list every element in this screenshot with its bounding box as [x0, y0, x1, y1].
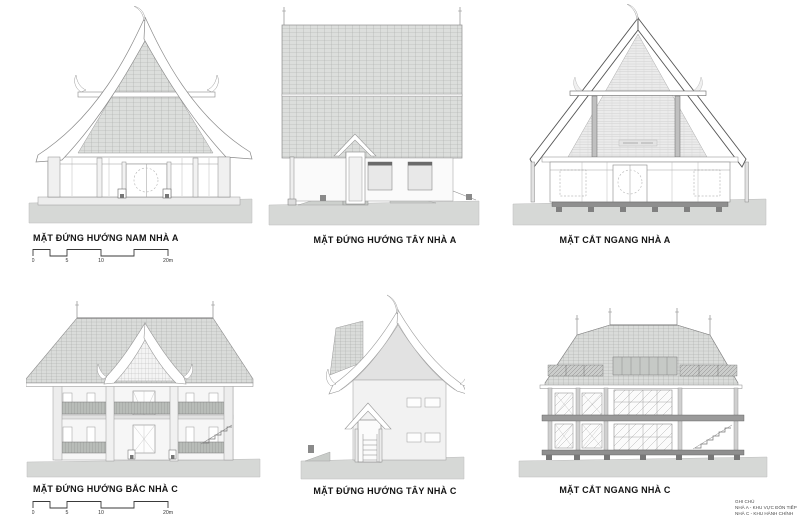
label-cross-section-c: MẶT CẮT NGANG NHÀ C — [515, 485, 715, 495]
wall-sign — [619, 140, 657, 146]
drawing-west-elevation-building-c — [300, 290, 465, 480]
ground — [27, 459, 260, 477]
side-ramp-rail — [453, 191, 476, 200]
roof-tiles — [282, 25, 462, 158]
lower-floor-glazing — [555, 424, 672, 450]
scale-tick-10: 10 — [98, 510, 104, 515]
scale-bar-bottom: 0 5 10 20m — [32, 497, 182, 515]
base-slab — [542, 450, 744, 460]
scale-tick-20m: 20m — [163, 258, 173, 263]
drawing-sheet: MẶT ĐỨNG HƯỚNG NAM NHÀ A MẶT ĐỨNG HƯỚNG … — [0, 0, 800, 524]
scale-tick-5: 5 — [66, 510, 69, 515]
drawing-west-elevation-building-a — [268, 4, 480, 226]
drawing-cross-section-building-c — [518, 290, 768, 478]
ridge-finials — [282, 7, 462, 26]
scale-bar-top: 0 5 10 20m — [32, 245, 182, 263]
drawing-cross-section-building-a — [512, 4, 767, 226]
drawing-south-elevation-building-a — [28, 6, 253, 224]
scale-tick-20m: 20m — [163, 510, 173, 515]
upper-floor-glazing — [555, 390, 672, 415]
label-cross-section-a: MẶT CẮT NGANG NHÀ A — [515, 235, 715, 245]
notes-block: GHI CHÚ NHÀ A - KHU VỰC ĐÓN TIẾP NHÀ C -… — [735, 499, 797, 517]
scale-tick-0: 0 — [32, 510, 35, 515]
mid-slab — [542, 415, 744, 421]
scale-tick-10: 10 — [98, 258, 104, 263]
lower-wall — [531, 157, 749, 202]
notes-line-building-c: NHÀ C - KHU HÀNH CHÍNH — [735, 511, 797, 517]
label-north-elevation-c: MẶT ĐỨNG HƯỚNG BẮC NHÀ C — [33, 484, 178, 494]
scale-tick-0: 0 — [32, 258, 35, 263]
label-west-elevation-a: MẶT ĐỨNG HƯỚNG TÂY NHÀ A — [285, 235, 485, 245]
staircase — [693, 425, 732, 449]
label-west-elevation-c: MẶT ĐỨNG HƯỚNG TÂY NHÀ C — [285, 486, 485, 496]
scale-tick-5: 5 — [66, 258, 69, 263]
drawing-north-elevation-building-c — [26, 293, 261, 478]
label-south-elevation-a: MẶT ĐỨNG HƯỚNG NAM NHÀ A — [33, 233, 179, 243]
